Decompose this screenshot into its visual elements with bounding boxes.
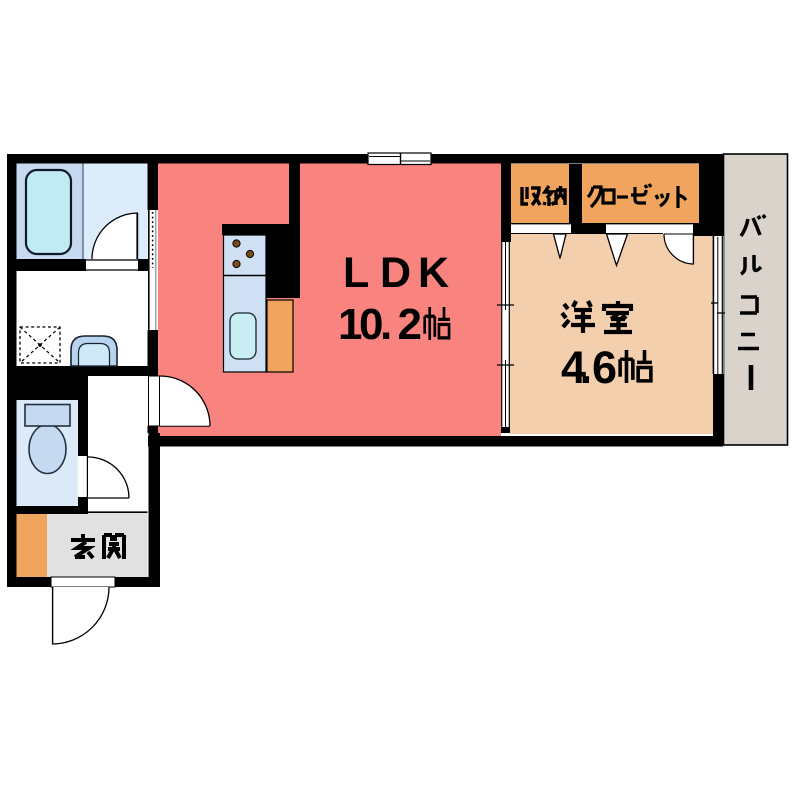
- svg-text:4. 6: 4. 6: [561, 342, 617, 393]
- svg-text:L: L: [343, 249, 369, 297]
- svg-text:K: K: [418, 249, 449, 297]
- svg-text:D: D: [380, 249, 411, 297]
- svg-text:10. 2: 10. 2: [338, 300, 422, 349]
